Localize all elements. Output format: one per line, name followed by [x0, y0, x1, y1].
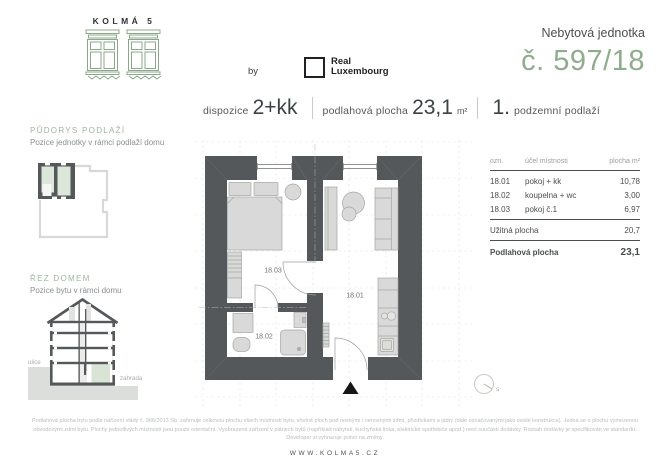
- floorplan-position-title: PŮDORYS PODLAŽÍ: [30, 126, 164, 135]
- garden-label: zahrada: [120, 375, 143, 382]
- table-row: 18.01 pokoj + kk 10,78: [490, 177, 640, 186]
- real-luxembourg-square-icon: [304, 57, 325, 78]
- kolma5-logo: KOLMÁ 5: [84, 16, 164, 81]
- unit-number: č. 597/18: [521, 45, 645, 78]
- entrance-arrow-icon: [343, 382, 359, 395]
- room-label-18-03: 18.03: [264, 268, 282, 275]
- floorplan-position-header: PŮDORYS PODLAŽÍ Pozice jednotky v rámci …: [30, 126, 164, 147]
- real-luxembourg-logo: Real Luxembourg: [304, 57, 389, 78]
- area-value: 23,1: [412, 96, 453, 120]
- table-divider: [490, 240, 640, 241]
- area-label: podlahová plocha: [323, 105, 409, 117]
- table-row: 18.02 koupelna + wc 3,00: [490, 191, 640, 200]
- header-area: plocha m²: [609, 158, 640, 165]
- sink: [294, 313, 306, 328]
- bed: [228, 183, 283, 251]
- website-link[interactable]: WWW.KOLMA5.CZ: [0, 450, 670, 457]
- shower: [281, 330, 306, 355]
- unit-type-label: Nebytová jednotka: [521, 26, 645, 40]
- header-purpose: účel místnosti: [525, 158, 609, 165]
- floorplan-position-subtitle: Pozice jednotky v rámci podlaží domu: [30, 138, 164, 147]
- radiator: [228, 252, 242, 278]
- real-luxembourg-name: Real Luxembourg: [331, 57, 389, 78]
- wardrobe: [325, 187, 337, 250]
- spec-bar: dispozice 2+kk podlahová plocha 23,1 m² …: [203, 96, 600, 120]
- kolma5-logo-text: KOLMÁ 5: [84, 16, 164, 26]
- kitchen-counter: [378, 278, 398, 355]
- mini-floorplan: [30, 156, 150, 252]
- usable-area-label: Užitná plocha: [490, 226, 538, 235]
- table-divider: [490, 219, 640, 220]
- area-unit: m²: [457, 106, 468, 116]
- usable-area-row: Užitná plocha 20,7: [490, 226, 640, 235]
- table-header-row: ozn. účel místnosti plocha m²: [490, 158, 640, 165]
- table-divider: [490, 170, 640, 171]
- compass-label: s: [496, 386, 500, 393]
- total-area-row: Podlahová plocha 23,1: [490, 247, 640, 258]
- header-code: ozn.: [490, 158, 525, 165]
- toilet: [233, 338, 250, 352]
- floor-number: 1.: [492, 96, 510, 120]
- spec-divider: [312, 97, 313, 119]
- table-row: 18.03 pokoj č.1 6,97: [490, 205, 640, 214]
- main-floorplan: 18.01 18.02 18.03: [195, 140, 475, 410]
- sofa: [375, 188, 398, 250]
- dispozice-value: 2+kk: [253, 96, 298, 120]
- room-label-18-01: 18.01: [346, 293, 364, 300]
- unit-header: Nebytová jednotka č. 597/18: [521, 26, 645, 78]
- radiator: [323, 323, 329, 347]
- kolma5-windows-icon: [84, 29, 162, 81]
- cabinet: [228, 278, 242, 298]
- brochure-page: KOLMÁ 5: [0, 0, 670, 470]
- by-label: by: [248, 66, 258, 77]
- room-label-18-02: 18.02: [255, 334, 273, 341]
- unit-highlight: [92, 364, 111, 383]
- compass-icon: s: [468, 368, 512, 404]
- washer: [233, 314, 253, 333]
- side-table: [285, 184, 301, 200]
- street-label: ulice: [28, 359, 41, 366]
- building-section: ulice zahrada: [25, 294, 170, 406]
- area-table: ozn. účel místnosti plocha m² 18.01 poko…: [490, 158, 640, 258]
- dispozice-label: dispozice: [203, 105, 249, 117]
- roof: [48, 300, 118, 324]
- floor-label: podzemní podlaží: [514, 105, 600, 117]
- building-section-header: ŘEZ DOMEM Pozice bytu v rámci domu: [30, 274, 122, 295]
- total-area-value: 23,1: [621, 247, 640, 258]
- usable-area-value: 20,7: [624, 226, 640, 235]
- building-section-title: ŘEZ DOMEM: [30, 274, 122, 283]
- spec-divider: [477, 97, 478, 119]
- disclaimer-text: Podlahová plocha bytu podle nařízení vlá…: [32, 417, 638, 443]
- total-area-label: Podlahová plocha: [490, 248, 558, 257]
